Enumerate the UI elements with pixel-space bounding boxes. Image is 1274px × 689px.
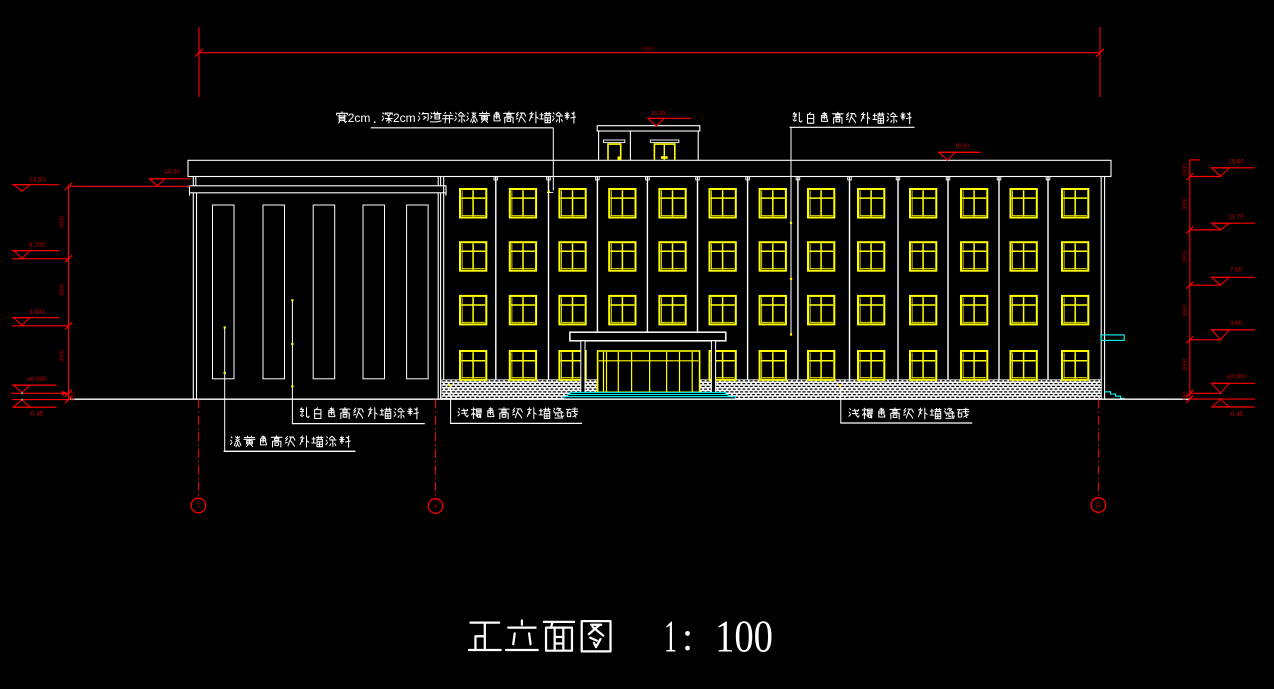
svg-text:1: 1: [664, 611, 677, 662]
svg-text:-0.45: -0.45: [1229, 411, 1244, 418]
svg-text:4800: 4800: [60, 284, 66, 296]
svg-text:450: 450: [71, 392, 77, 401]
svg-text:3.90: 3.90: [1230, 320, 1243, 327]
svg-text:7.80: 7.80: [1230, 267, 1243, 274]
svg-text:450: 450: [1183, 391, 1189, 400]
svg-text:3900: 3900: [1183, 251, 1189, 263]
svg-text:3.900: 3.900: [29, 309, 45, 316]
svg-text:13.50: 13.50: [29, 176, 45, 183]
svg-text:3900: 3900: [1183, 305, 1189, 317]
svg-text::: :: [682, 614, 693, 659]
svg-text:2cm: 2cm: [348, 111, 371, 125]
svg-text:11.70: 11.70: [1228, 214, 1244, 221]
svg-text:±0.000: ±0.000: [1226, 374, 1246, 381]
svg-text:19.20: 19.20: [651, 111, 666, 117]
svg-text:2400: 2400: [1183, 164, 1189, 176]
svg-text:8.700: 8.700: [29, 242, 45, 249]
svg-text:4800: 4800: [60, 216, 66, 228]
svg-text:-0.45: -0.45: [29, 411, 44, 418]
svg-text:3900: 3900: [60, 350, 66, 362]
svg-text:2cm: 2cm: [393, 111, 416, 125]
svg-text:14.00: 14.00: [164, 168, 180, 175]
svg-text:100: 100: [715, 611, 773, 662]
svg-text:3900: 3900: [1183, 359, 1189, 371]
svg-text:64800: 64800: [641, 47, 655, 53]
svg-text:±0.000: ±0.000: [27, 376, 47, 383]
svg-text:3900: 3900: [1183, 198, 1189, 210]
svg-text:15.60: 15.60: [1228, 159, 1244, 166]
svg-text:16.80: 16.80: [955, 144, 970, 150]
svg-text:11: 11: [1095, 503, 1102, 509]
